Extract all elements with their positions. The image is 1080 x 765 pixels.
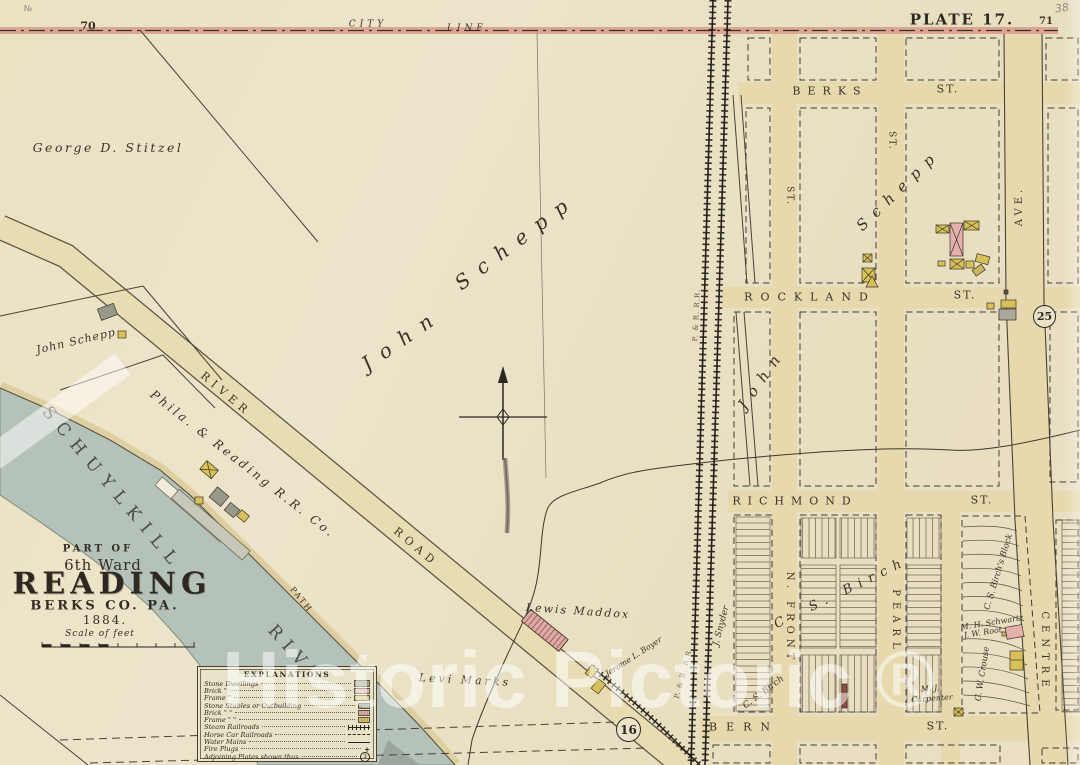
street-berks: BERKS <box>792 86 867 97</box>
cartouche-year: 1884. <box>83 613 127 627</box>
street-berks-suffix: ST. <box>937 84 960 95</box>
street-centre: CENTRE <box>1039 611 1049 692</box>
street-front-ext-suffix: ST. <box>785 186 794 206</box>
legend-label: Adjoining Plates shown thus <box>204 753 299 761</box>
legend-symbol-horse-rail <box>348 734 370 735</box>
street-richmond-suffix: ST. <box>971 495 994 506</box>
street-richmond: RICHMOND <box>732 496 857 507</box>
legend-leader <box>241 747 361 749</box>
page-number-left: 70 <box>80 21 95 32</box>
cartouche-county: BERKS CO. PA. <box>30 599 179 614</box>
cartouche-scale-label: Scale of feet <box>65 629 135 639</box>
scale-bar <box>42 642 195 647</box>
legend-leader <box>302 755 357 757</box>
watermark-text: Historic Pictoric ® <box>222 634 936 726</box>
city-line <box>0 27 1058 34</box>
schepp-stable <box>936 221 979 256</box>
cartouche-city: READING <box>12 567 211 602</box>
city-line-word2: LINE <box>447 25 487 34</box>
legend-symbol-plate-circle: 3 <box>360 752 370 762</box>
legend-row: Adjoining Plates shown thus3 <box>204 753 370 760</box>
city-line-word1: CITY <box>349 21 387 30</box>
street-centre-ave-suffix: AVE. <box>1015 186 1025 226</box>
owner-stitzel: George D. Stitzel <box>33 142 184 155</box>
street-rockland: ROCKLAND <box>744 292 876 303</box>
page-edge-highlight <box>1064 0 1080 765</box>
page-number-right: 71 <box>1039 17 1053 27</box>
street-rockland-suffix: ST. <box>954 290 977 301</box>
adjoining-plate-25: 25 <box>1033 305 1056 328</box>
plate-title: PLATE 17. <box>910 13 1015 28</box>
legend-leader <box>249 740 345 742</box>
legend-symbol-water-main <box>348 742 370 743</box>
corner-pencil-mark: № <box>24 5 32 13</box>
map-plate: № 70 PLATE 17. 71 38 CITY LINE George D.… <box>0 0 1080 765</box>
legend-leader <box>275 733 345 735</box>
cartouche-part-of: PART OF <box>63 544 133 555</box>
compass-rose <box>459 366 547 533</box>
street-pearl-ext-suffix: ST. <box>887 131 896 151</box>
